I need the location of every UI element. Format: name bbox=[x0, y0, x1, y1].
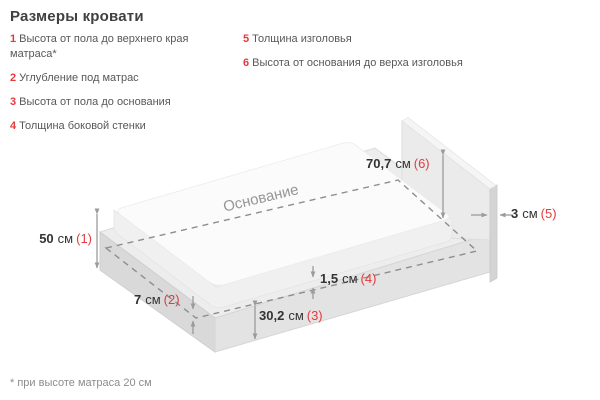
dimension-value-4: 1,5 bbox=[320, 271, 338, 286]
dimension-ref-3: (3) bbox=[307, 308, 323, 323]
dimension-unit-6: см bbox=[395, 156, 410, 171]
dimension-label-2: 7см(2) bbox=[134, 292, 180, 307]
dimension-value-3: 30,2 bbox=[259, 308, 284, 323]
dimension-unit-2: см bbox=[145, 292, 160, 307]
bed-dimensions-page: Размеры кровати 1Высота от пола до верхн… bbox=[0, 0, 600, 400]
dimension-label-3: 30,2см(3) bbox=[259, 308, 323, 323]
dimension-unit-5: см bbox=[522, 206, 537, 221]
dimension-ref-6: (6) bbox=[414, 156, 430, 171]
dimension-label-6: 70,7см(6) bbox=[366, 156, 430, 171]
dimension-unit-3: см bbox=[288, 308, 303, 323]
dimension-value-2: 7 bbox=[134, 292, 141, 307]
dimension-ref-5: (5) bbox=[541, 206, 557, 221]
dimension-ref-1: (1) bbox=[76, 231, 92, 246]
dimension-label-5: 3см(5) bbox=[511, 206, 557, 221]
footnote: * при высоте матраса 20 см bbox=[10, 377, 152, 389]
dimension-unit-4: см bbox=[342, 271, 357, 286]
bed-illustration bbox=[0, 0, 600, 400]
dimension-ref-2: (2) bbox=[164, 292, 180, 307]
dimension-label-1: 50см(1) bbox=[26, 231, 92, 246]
dimension-value-1: 50 bbox=[39, 231, 53, 246]
dimension-ref-4: (4) bbox=[361, 271, 377, 286]
dimension-unit-1: см bbox=[58, 231, 73, 246]
dimension-label-4: 1,5см(4) bbox=[320, 271, 376, 286]
dimension-value-5: 3 bbox=[511, 206, 518, 221]
dimension-value-6: 70,7 bbox=[366, 156, 391, 171]
